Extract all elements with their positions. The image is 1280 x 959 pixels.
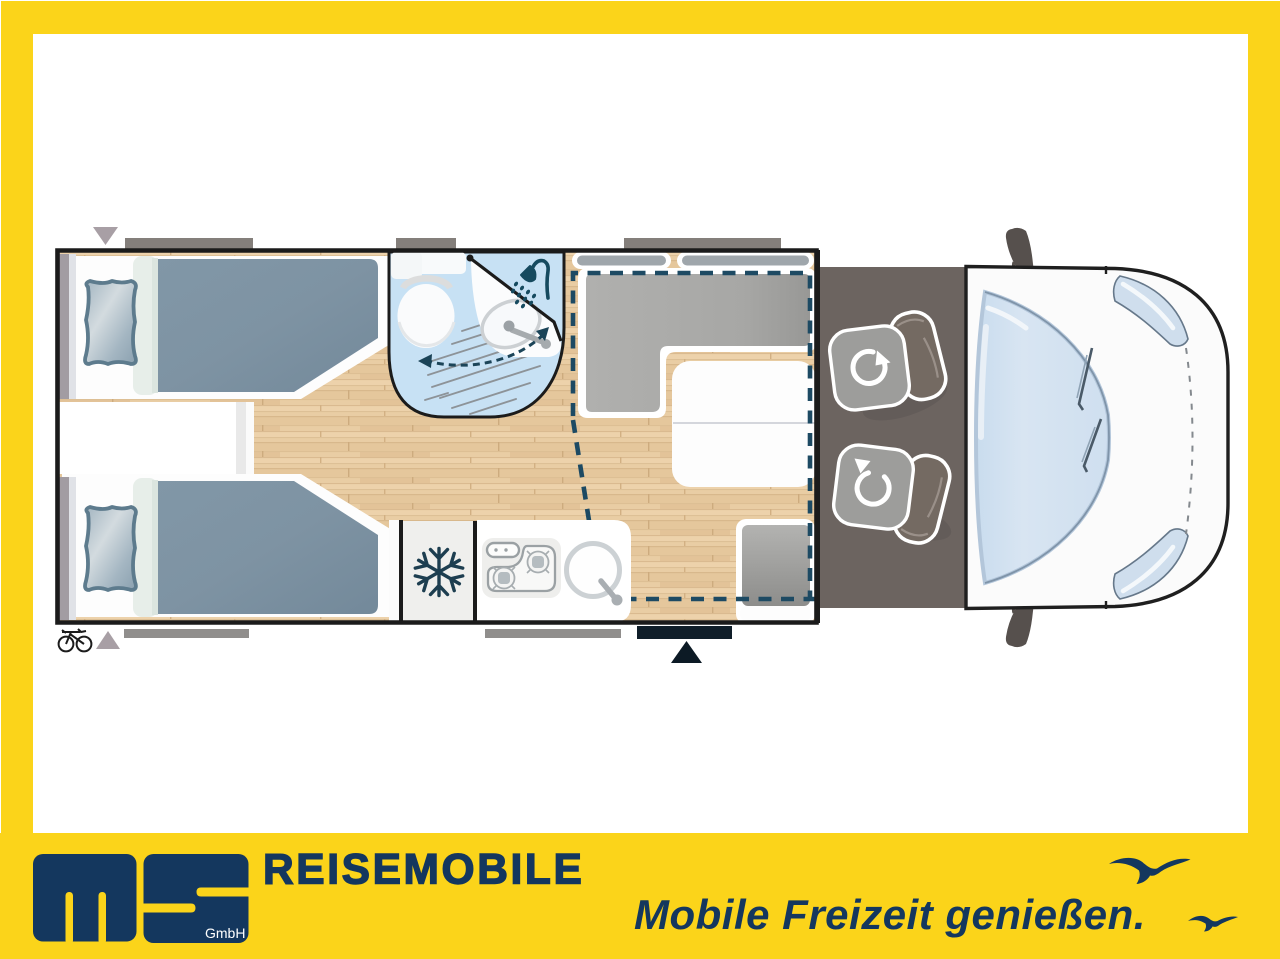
svg-text:REISEMOBILE: REISEMOBILE [263,847,584,894]
svg-text:Mobile Freizeit genießen.: Mobile Freizeit genießen. [634,891,1146,938]
svg-text:GmbH: GmbH [205,925,245,941]
